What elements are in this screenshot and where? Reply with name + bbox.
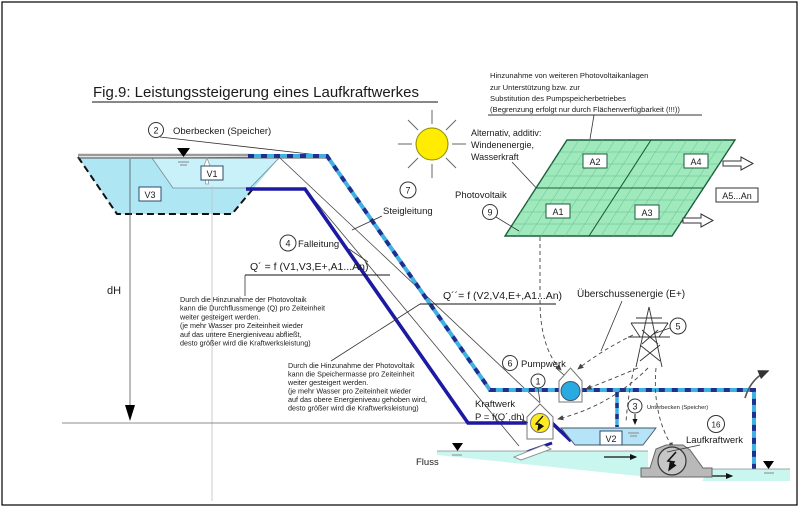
circulation-arrow-icon [745, 371, 768, 398]
laufkraftwerk-label: Laufkraftwerk [686, 435, 743, 446]
river-downstream [702, 469, 790, 481]
unterbecken-label: Unterbecken (Speicher) [647, 405, 708, 411]
river-upstream [437, 451, 648, 477]
svg-text:Alternativ, additiv:: Alternativ, additiv: [471, 128, 541, 138]
svg-text:Durch die Hinzunahme der Photo: Durch die Hinzunahme der Photovoltaik [180, 295, 307, 304]
svg-text:Wasserkraft: Wasserkraft [471, 152, 519, 162]
svg-text:auf das untere Energieniveau a: auf das untere Energieniveau abfließt, [180, 330, 301, 339]
output-arrow-upper-icon [723, 157, 753, 170]
surplus-energy-label: Überschussenergie (E+) [577, 288, 685, 300]
note-flow-increase: Durch die Hinzunahme der Photovoltaik ka… [179, 295, 325, 348]
svg-text:desto größer wird die Kraftwer: desto größer wird die Kraftwerksleistung… [288, 404, 419, 413]
fluss-label: Fluss [416, 457, 439, 468]
svg-text:weiter gesteigert werden.: weiter gesteigert werden. [179, 312, 260, 321]
callout-1-num: 1 [535, 377, 540, 387]
kraftwerk-label: Kraftwerk [475, 399, 515, 410]
v1-label: V1 [206, 169, 217, 179]
a3-label: A3 [641, 208, 652, 218]
downstream-level-marker-icon [763, 461, 774, 469]
callout-2-num: 2 [153, 126, 158, 136]
callout-3-num: 3 [632, 402, 637, 412]
pv-note-leader [590, 115, 594, 139]
note-alternative: Alternativ, additiv: Windenenergie, Wass… [471, 128, 541, 162]
pumpwerk-label: Pumpwerk [521, 359, 566, 370]
sun-icon [398, 110, 466, 178]
a1-label: A1 [552, 207, 563, 217]
kraftwerk-formula: P = f(Q´,dh) [475, 412, 525, 423]
callout-4-num: 4 [285, 239, 290, 249]
svg-text:desto größer wird die Kraftwer: desto größer wird die Kraftwerksleistung… [180, 339, 311, 348]
note-pv-expansion: Hinzunahme von weiteren Photovoltaikanla… [490, 71, 680, 114]
callout-7-num: 7 [405, 186, 410, 196]
a5n-label: A5...An [722, 191, 752, 201]
page-border [2, 2, 797, 505]
callout-9-num: 9 [487, 208, 492, 218]
pump-icon [561, 382, 580, 401]
svg-text:zur Unterstützung bzw. zur: zur Unterstützung bzw. zur [490, 83, 580, 92]
output-arrow-lower-icon [683, 214, 713, 227]
callout-6-num: 6 [507, 359, 512, 369]
v3-label: V3 [144, 190, 155, 200]
generator-icon [531, 414, 550, 433]
svg-text:Hinzunahme von weiteren Photov: Hinzunahme von weiteren Photovoltaikanla… [490, 71, 648, 80]
photovoltaik-label: Photovoltaik [455, 190, 507, 201]
a2-label: A2 [589, 157, 600, 167]
electric-wires [540, 237, 673, 448]
page-title: Fig.9: Leistungssteigerung eines Laufkra… [93, 84, 419, 101]
svg-text:(je mehr Wasser pro Zeiteinhei: (je mehr Wasser pro Zeiteinheit wieder [180, 321, 304, 330]
svg-text:Windenenergie,: Windenenergie, [471, 140, 534, 150]
q-prime-formula: Q´ = f (V1,V3,E+,A1...An) [250, 261, 368, 273]
falleitung-label: Falleitung [298, 239, 339, 250]
svg-text:(Begrenzung erfolgt nur durch: (Begrenzung erfolgt nur durch Flächenver… [490, 105, 680, 114]
dh-label: dH [107, 285, 121, 297]
q-double-prime-formula: Q´´= f (V2,V4,E+,A1...An) [443, 290, 562, 302]
steigleitung-label: Steigleitung [383, 206, 433, 217]
upstream-level-marker-icon [452, 443, 463, 451]
diagram-canvas: Fig.9: Leistungssteigerung eines Laufkra… [0, 0, 800, 512]
dh-arrowhead [125, 405, 135, 421]
svg-text:kann die Durchflussmenge (Q) p: kann die Durchflussmenge (Q) pro Zeitein… [180, 304, 325, 313]
oberbecken-label: Oberbecken (Speicher) [173, 126, 271, 137]
note-storage-increase: Durch die Hinzunahme der Photovoltaik ka… [287, 361, 427, 413]
svg-text:Substitution des Pumpspeicherb: Substitution des Pumpspeicherbetriebes [490, 94, 626, 103]
callout-16-num: 16 [712, 421, 721, 430]
laufkraftwerk-diagram: Fig.9: Leistungssteigerung eines Laufkra… [0, 0, 800, 512]
callout-5-num: 5 [675, 322, 680, 332]
v2-label: V2 [605, 434, 616, 444]
a4-label: A4 [690, 157, 701, 167]
power-pylon-icon [628, 307, 670, 367]
surplus-leader [601, 301, 622, 351]
